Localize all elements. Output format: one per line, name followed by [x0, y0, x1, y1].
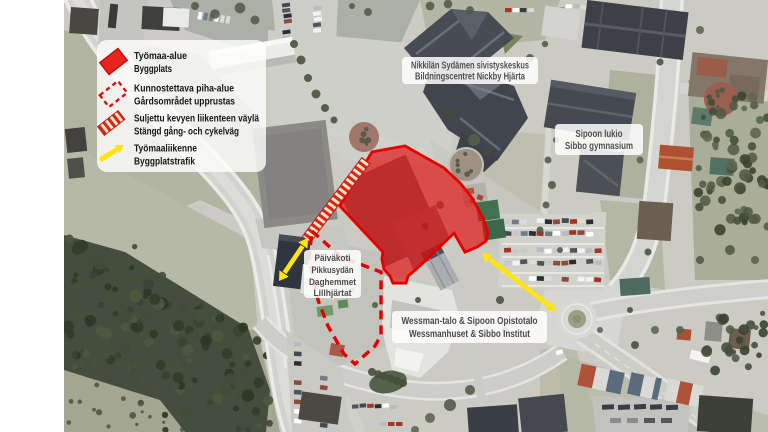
svg-text:Stängd gång- och cykelväg: Stängd gång- och cykelväg — [134, 126, 239, 138]
svg-text:Byggplatstrafik: Byggplatstrafik — [134, 156, 195, 168]
svg-text:Pikkusydän: Pikkusydän — [312, 265, 354, 276]
svg-text:Työmaa-alue: Työmaa-alue — [134, 50, 187, 62]
svg-text:Lillhjärtat: Lillhjärtat — [314, 288, 353, 299]
svg-text:Suljettu kevyen liikenteen väy: Suljettu kevyen liikenteen väylä — [134, 113, 259, 125]
svg-text:Kunnostettava piha-alue: Kunnostettava piha-alue — [134, 83, 234, 95]
svg-text:Työmaaliikenne: Työmaaliikenne — [134, 143, 197, 155]
svg-text:Daghemmet: Daghemmet — [309, 277, 357, 288]
svg-text:Byggplats: Byggplats — [134, 63, 172, 75]
svg-text:Nikkilän Sydämen sivistyskesku: Nikkilän Sydämen sivistyskeskus — [411, 61, 529, 72]
svg-text:Sipoon lukio: Sipoon lukio — [576, 129, 623, 140]
svg-text:Wessman-talo & Sipoon Opistota: Wessman-talo & Sipoon Opistotalo — [402, 316, 538, 327]
svg-text:Wessmanhuset & Sibbo Institut: Wessmanhuset & Sibbo Institut — [409, 329, 531, 340]
svg-text:Päiväkoti: Päiväkoti — [315, 253, 351, 264]
svg-text:Sibbo gymnasium: Sibbo gymnasium — [565, 141, 633, 152]
svg-text:Gårdsområdet upprustas: Gårdsområdet upprustas — [134, 96, 235, 108]
svg-text:Bildningscentret Nickby Hjärta: Bildningscentret Nickby Hjärta — [415, 72, 525, 83]
